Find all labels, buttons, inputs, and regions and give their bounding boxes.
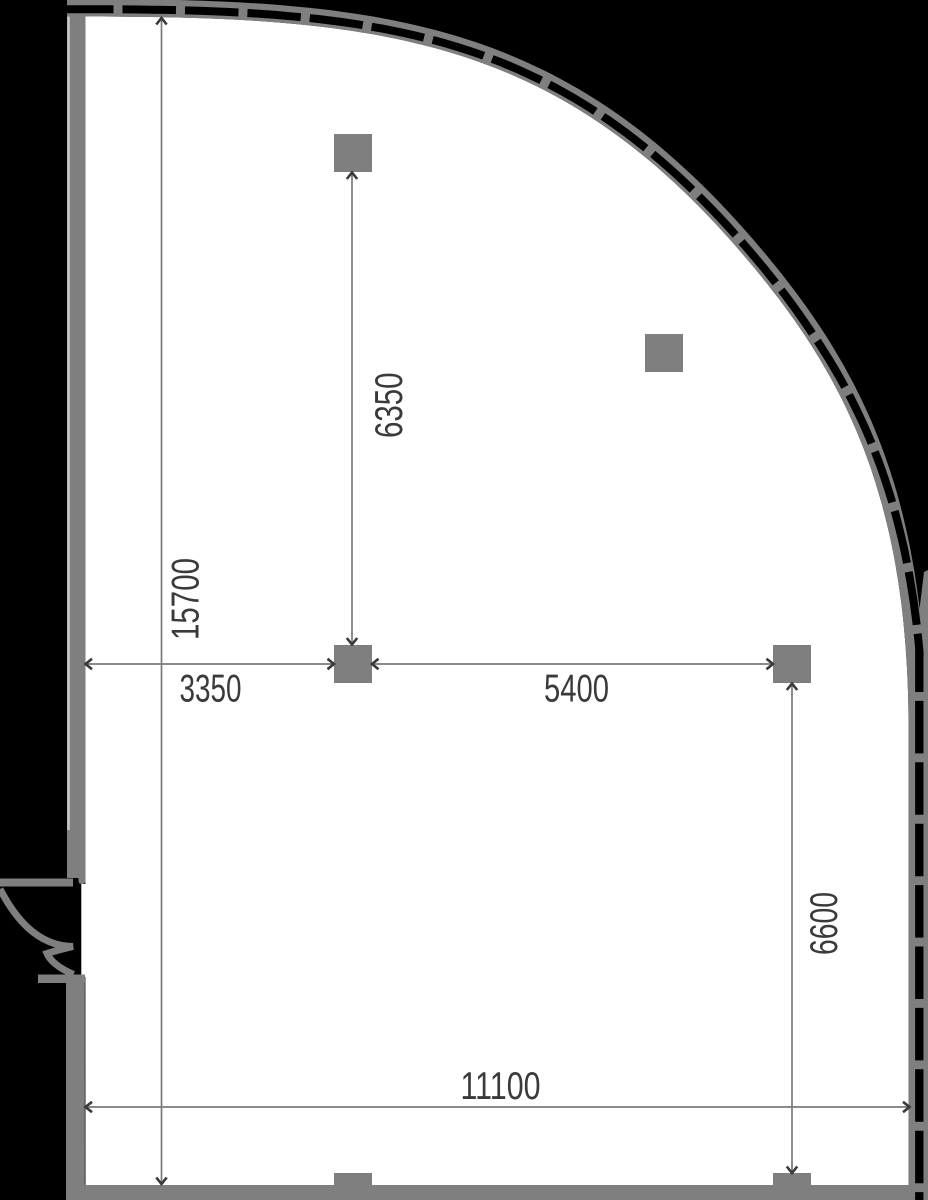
svg-text:6350: 6350: [368, 373, 411, 439]
svg-text:15700: 15700: [165, 558, 208, 640]
svg-text:6600: 6600: [803, 892, 846, 955]
svg-text:11100: 11100: [461, 1065, 541, 1108]
svg-text:3350: 3350: [180, 667, 242, 710]
svg-text:5400: 5400: [544, 667, 609, 710]
